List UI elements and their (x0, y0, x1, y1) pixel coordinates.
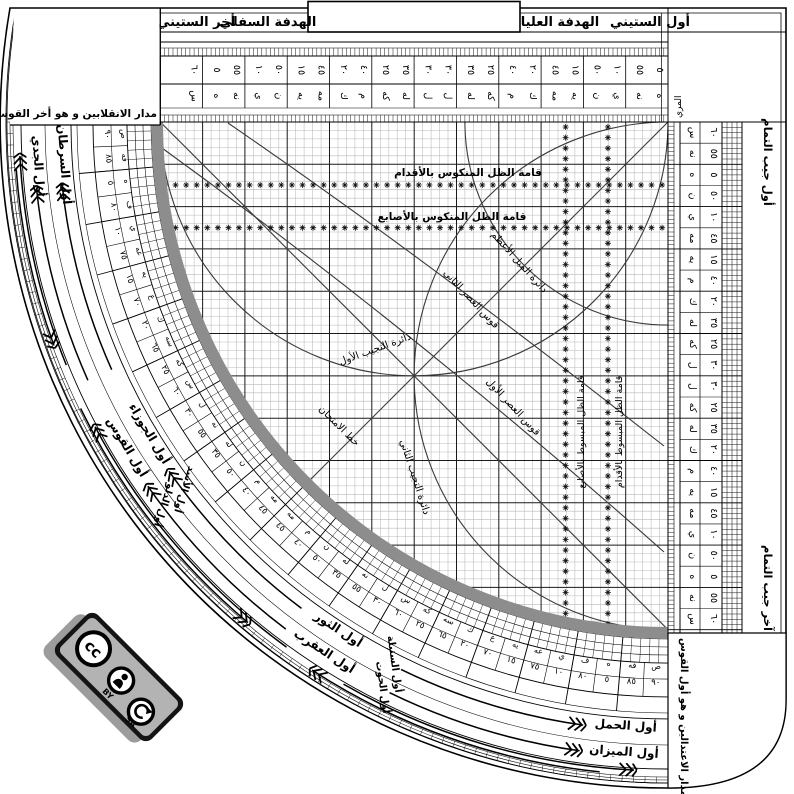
svg-text:٣٠: ٣٠ (442, 65, 453, 75)
svg-text:مه: مه (285, 509, 297, 521)
svg-text:٦٥: ٦٥ (148, 342, 161, 354)
svg-text:ل: ل (422, 93, 433, 100)
svg-text:٨٠: ٨٠ (577, 671, 588, 682)
svg-text:١٥: ١٥ (708, 487, 719, 497)
svg-text:٣٥: ٣٥ (209, 447, 222, 460)
svg-text:أول السرطان: أول السرطان (54, 124, 76, 205)
label-reversed-shadow-digits: قامة الظل المنكوس بالأصابع (378, 210, 527, 223)
svg-text:٢٠: ٢٠ (708, 297, 719, 307)
svg-text:عه: عه (134, 246, 145, 257)
svg-text:ص: ص (651, 662, 661, 671)
label-first-cosine: أول جيب التمام (760, 118, 776, 206)
svg-text:٥٥: ٥٥ (350, 582, 363, 595)
svg-text:٤٠: ٤٠ (239, 485, 253, 498)
svg-text:٤٥: ٤٥ (708, 508, 719, 518)
svg-text:مه: مه (316, 91, 327, 101)
svg-text:م: م (254, 476, 264, 486)
svg-text:٢٥: ٢٥ (708, 402, 719, 412)
label-asr-second: قوس العصر الثاني (441, 268, 501, 332)
svg-text:٣٠: ٣٠ (708, 381, 719, 391)
svg-text:٤٠: ٤٠ (291, 537, 304, 551)
svg-text:١٠: ١٠ (553, 666, 564, 678)
svg-text:ن: ن (322, 541, 332, 552)
svg-text:ه: ه (687, 172, 698, 177)
svg-text:٦٠: ٦٠ (170, 385, 183, 398)
svg-text:ه: ه (687, 574, 698, 579)
svg-text:٥٠: ٥٠ (224, 466, 238, 479)
svg-text:٢٥: ٢٥ (485, 65, 496, 75)
svg-text:يه: يه (296, 92, 307, 100)
svg-text:يه: يه (140, 270, 150, 279)
svg-text:ل: ل (197, 400, 208, 410)
svg-text:مه: مه (687, 508, 698, 518)
svg-text:ف: ف (125, 200, 135, 210)
svg-text:٨٥: ٨٥ (103, 154, 114, 164)
svg-text:ه: ه (606, 659, 611, 668)
svg-text:٢٠: ٢٠ (338, 65, 349, 75)
sine-quadrant-diagram: ٩٠ص٨٥فه٥ه٨٠ف١٠ي٧٥عه١٥يه٧٠ع٢٠ك٦٥سه٢٥كه٦٠س… (0, 0, 794, 794)
svg-text:٥٥: ٥٥ (634, 65, 645, 75)
svg-text:كه: كه (174, 357, 186, 368)
svg-text:ن: ن (687, 193, 698, 200)
svg-text:٢٠: ٢٠ (708, 445, 719, 455)
svg-text:ع: ع (147, 293, 157, 301)
label-tajyib-first: دائرة التجيب الأول (337, 330, 413, 368)
svg-text:٢٠: ٢٠ (527, 65, 538, 75)
svg-text:٦٠: ٦٠ (708, 127, 719, 137)
sine-grid: قامة الظل المنكوس بالأقدام قامة الظل الم… (160, 122, 668, 630)
svg-text:كه: كه (422, 605, 433, 617)
svg-text:٥: ٥ (708, 574, 719, 579)
svg-text:٩٠: ٩٠ (102, 130, 112, 139)
svg-text:١٥: ١٥ (708, 254, 719, 264)
svg-text:ي: ي (687, 531, 698, 538)
svg-text:له: له (687, 319, 698, 327)
label-last-cosine: آخر جيب التمام (761, 545, 775, 632)
svg-text:ف: ف (580, 655, 590, 665)
svg-text:س: س (687, 127, 698, 139)
svg-text:له: له (223, 439, 234, 450)
label-extended-shadow-digits: قامة الظل المبسوط بالأصابع (575, 376, 587, 489)
svg-text:عه: عه (533, 645, 544, 656)
svg-text:ك: ك (687, 298, 698, 306)
svg-text:٢٥: ٢٥ (380, 65, 391, 75)
svg-text:م: م (304, 526, 314, 536)
label-test-line: خط الامتحان (316, 404, 361, 449)
svg-text:٥٠: ٥٠ (273, 65, 284, 75)
svg-text:٤٠: ٤٠ (507, 65, 518, 75)
svg-text:س: س (189, 90, 200, 102)
svg-text:٤٥: ٤٥ (549, 65, 560, 75)
svg-text:٥٥: ٥٥ (708, 593, 719, 603)
svg-text:كه: كه (687, 403, 698, 413)
svg-text:٣٥: ٣٥ (708, 318, 719, 328)
svg-text:يه: يه (687, 488, 698, 496)
svg-text:ن: ن (238, 458, 249, 468)
svg-text:م: م (507, 93, 518, 99)
svg-text:يه: يه (569, 92, 580, 100)
svg-text:ي: ي (612, 92, 623, 99)
svg-text:مه: مه (549, 91, 560, 101)
svg-text:٥: ٥ (211, 67, 222, 72)
label-reversed-shadow-feet: قامة الظل المنكوس بالأقدام (394, 166, 542, 179)
svg-text:ك: ك (338, 92, 349, 100)
svg-text:كه: كه (485, 91, 496, 101)
arc-asr-first (162, 148, 664, 552)
svg-text:ص: ص (119, 129, 128, 139)
svg-text:٨٠: ٨٠ (108, 202, 119, 213)
svg-text:له: له (400, 92, 411, 100)
svg-text:٤٥: ٤٥ (316, 65, 327, 75)
equinox-box: مدار الاعتدالين و هو أول القوس (668, 633, 786, 794)
label-first-sixty: أول الستيني (610, 13, 690, 30)
svg-text:٢٥: ٢٥ (414, 619, 427, 632)
svg-text:٧٥: ٧٥ (117, 250, 129, 261)
svg-text:٦٥: ٦٥ (436, 629, 448, 642)
svg-text:نه: نه (231, 92, 242, 100)
svg-text:ك: ك (687, 446, 698, 454)
svg-text:ن: ن (592, 93, 603, 100)
svg-text:ل: ل (687, 383, 698, 390)
svg-text:٣٠: ٣٠ (422, 65, 433, 75)
svg-text:٢٠: ٢٠ (139, 319, 152, 331)
svg-text:٣٥: ٣٥ (400, 65, 411, 75)
svg-text:٣٥: ٣٥ (465, 65, 476, 75)
svg-text:٥: ٥ (105, 180, 115, 186)
svg-text:س: س (184, 377, 197, 390)
svg-text:نه: نه (634, 92, 645, 100)
svg-text:ك: ك (155, 315, 166, 324)
svg-text:١٠: ١٠ (708, 529, 719, 539)
svg-text:ه: ه (654, 94, 665, 99)
svg-text:ل: ل (381, 582, 391, 593)
svg-text:٣٠: ٣٠ (370, 595, 383, 608)
svg-text:سه: سه (442, 614, 456, 627)
svg-text:٤٥: ٤٥ (256, 503, 270, 517)
svg-text:نه: نه (687, 594, 698, 602)
svg-text:يه: يه (687, 256, 698, 264)
sexagesimal-top-scale: ٥٥٥هنه١٠٥٠ين١٥٤٥يهمه٢٠٤٠كم٢٥٣٥كهله٣٠٣٠لل… (160, 42, 668, 122)
svg-text:٥٥: ٥٥ (231, 65, 242, 75)
svg-text:٣٠: ٣٠ (708, 360, 719, 370)
svg-text:٤٠: ٤٠ (708, 466, 719, 476)
svg-text:ي: ي (129, 224, 139, 232)
svg-text:يه: يه (511, 639, 520, 649)
svg-text:٤٠: ٤٠ (358, 65, 369, 75)
svg-text:مه: مه (268, 492, 280, 504)
label-equinox-circle: مدار الاعتدالين و هو أول القوس (678, 638, 691, 794)
svg-text:٢٥: ٢٥ (708, 339, 719, 349)
svg-text:كه: كه (687, 339, 698, 349)
svg-text:ك: ك (466, 624, 475, 635)
svg-text:٣٠: ٣٠ (182, 407, 195, 420)
svg-text:١٠: ١٠ (253, 65, 264, 75)
sine-quadrant-page: ٩٠ص٨٥فه٥ه٨٠ف١٠ي٧٥عه١٥يه٧٠ع٢٠ك٦٥سه٢٥كه٦٠س… (0, 0, 794, 794)
svg-text:م: م (687, 468, 698, 474)
svg-text:فه: فه (628, 661, 637, 671)
svg-text:١٥: ١٥ (123, 273, 135, 285)
svg-text:٥: ٥ (604, 674, 610, 684)
label-solstice-circle: مدار الانقلابين و هو أخر القوس (0, 106, 157, 120)
svg-text:٥: ٥ (708, 172, 719, 177)
svg-text:١٠: ١٠ (612, 65, 623, 75)
label-asr-first: قوس العصر الأول (484, 375, 544, 438)
svg-text:ع: ع (489, 633, 497, 643)
svg-text:ل: ل (687, 362, 698, 369)
svg-text:كه: كه (380, 91, 391, 101)
svg-text:٧٠: ٧٠ (482, 647, 494, 659)
solstice-box: مدار الانقلابين و هو أخر القوس (0, 8, 160, 125)
svg-text:٥٠: ٥٠ (708, 551, 719, 561)
svg-text:م: م (358, 93, 369, 99)
svg-text:٥٠: ٥٠ (708, 191, 719, 201)
svg-text:أول الأسد: أول الأسد (171, 465, 198, 515)
svg-text:س: س (400, 593, 413, 606)
svg-text:٨٥: ٨٥ (626, 677, 636, 688)
svg-text:ن: ن (687, 552, 698, 559)
svg-text:ه: ه (211, 94, 222, 99)
svg-text:فه: فه (120, 153, 130, 162)
svg-text:٤٥: ٤٥ (273, 520, 287, 534)
svg-text:٤٠: ٤٠ (708, 276, 719, 286)
svg-text:م: م (687, 278, 698, 284)
svg-text:أول الميزان: أول الميزان (589, 741, 659, 762)
svg-text:١٠: ١٠ (112, 226, 124, 237)
label-muri: المري (674, 96, 684, 118)
svg-text:٧٠: ٧٠ (131, 296, 143, 308)
svg-text:٢٥: ٢٥ (158, 364, 171, 377)
svg-text:ك: ك (527, 92, 538, 100)
svg-text:نه: نه (360, 569, 370, 580)
svg-text:٦٠: ٦٠ (189, 65, 200, 75)
svg-text:له: له (341, 555, 352, 566)
svg-text:له: له (687, 425, 698, 433)
svg-text:١٥: ١٥ (296, 65, 307, 75)
cc-by-sa-badge[interactable]: cc BY SA (40, 604, 187, 751)
svg-text:٦٠: ٦٠ (392, 607, 405, 620)
svg-text:نه: نه (687, 150, 698, 158)
svg-text:٥٥: ٥٥ (708, 149, 719, 159)
svg-text:س: س (687, 613, 698, 625)
svg-text:نه: نه (210, 419, 221, 429)
svg-text:سه: سه (163, 334, 176, 348)
svg-text:٥٠: ٥٠ (592, 65, 603, 75)
label-extended-shadow-feet: قامة الظل المبسوط بالأقدام (613, 376, 625, 488)
svg-text:٩٠: ٩٠ (651, 678, 660, 688)
svg-text:٥٥: ٥٥ (195, 427, 208, 440)
label-last-sixty: أخر الستيني (157, 13, 235, 30)
svg-text:١٠: ١٠ (708, 212, 719, 222)
svg-text:٥: ٥ (654, 67, 665, 72)
svg-text:٦٠: ٦٠ (708, 614, 719, 624)
svg-text:ل: ل (442, 93, 453, 100)
svg-text:٣٥: ٣٥ (708, 424, 719, 434)
svg-text:٤٥: ٤٥ (708, 233, 719, 243)
svg-text:٣٥: ٣٥ (330, 568, 343, 581)
svg-text:٢٠: ٢٠ (459, 639, 471, 652)
svg-text:ن: ن (273, 93, 284, 100)
sight-tab (308, 2, 520, 33)
svg-text:مه: مه (687, 233, 698, 243)
label-upper-sight: الهدفة العليا (521, 15, 600, 30)
svg-text:ي: ي (687, 213, 698, 220)
svg-text:١٥: ١٥ (505, 655, 517, 667)
svg-text:له: له (465, 92, 476, 100)
svg-text:ي: ي (253, 92, 264, 99)
svg-text:١٥: ١٥ (569, 65, 580, 75)
svg-text:ي: ي (558, 651, 566, 661)
svg-text:٧٥: ٧٥ (529, 661, 540, 673)
svg-text:٥٠: ٥٠ (310, 553, 323, 567)
